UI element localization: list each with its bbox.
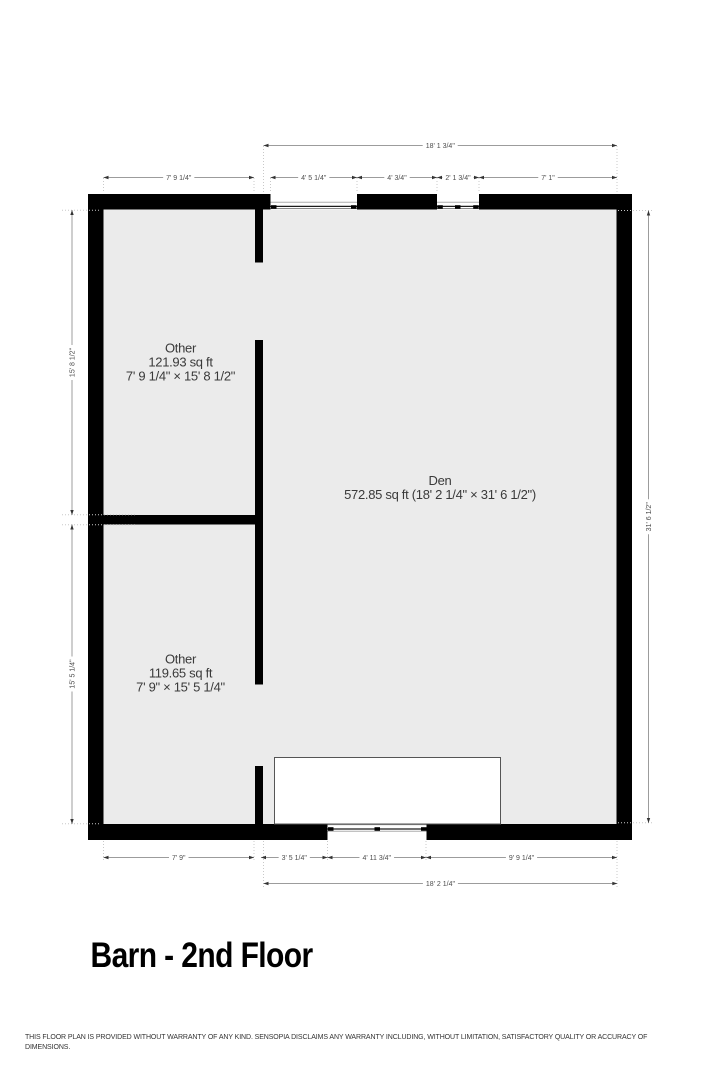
svg-text:2' 1 3/4": 2' 1 3/4" — [445, 175, 471, 182]
svg-text:7' 9" × 15' 5 1/4": 7' 9" × 15' 5 1/4" — [136, 680, 225, 695]
svg-text:18' 1 3/4": 18' 1 3/4" — [426, 143, 456, 150]
svg-text:Den: Den — [429, 473, 452, 488]
svg-text:3' 5 1/4": 3' 5 1/4" — [282, 855, 308, 862]
svg-text:4' 5 1/4": 4' 5 1/4" — [301, 175, 327, 182]
svg-text:31' 6 1/2": 31' 6 1/2" — [646, 502, 653, 532]
svg-text:7' 1": 7' 1" — [541, 175, 555, 182]
svg-text:4' 11 3/4": 4' 11 3/4" — [362, 855, 391, 862]
svg-text:4' 3/4": 4' 3/4" — [387, 175, 407, 182]
svg-text:7' 9": 7' 9" — [172, 855, 186, 862]
svg-text:15' 5 1/4": 15' 5 1/4" — [70, 659, 77, 689]
svg-text:Other: Other — [165, 341, 197, 356]
svg-text:7' 9 1/4" × 15' 8 1/2": 7' 9 1/4" × 15' 8 1/2" — [126, 369, 236, 384]
svg-text:119.65 sq ft: 119.65 sq ft — [149, 666, 213, 681]
svg-text:9' 9 1/4": 9' 9 1/4" — [509, 855, 535, 862]
svg-text:121.93 sq ft: 121.93 sq ft — [148, 355, 213, 370]
svg-text:15' 8 1/2": 15' 8 1/2" — [70, 347, 77, 377]
svg-text:572.85 sq ft (18' 2 1/4" × 31': 572.85 sq ft (18' 2 1/4" × 31' 6 1/2") — [344, 487, 536, 502]
svg-text:Other: Other — [165, 652, 197, 667]
svg-text:7' 9 1/4": 7' 9 1/4" — [166, 175, 192, 182]
svg-text:18' 2 1/4": 18' 2 1/4" — [426, 881, 456, 888]
